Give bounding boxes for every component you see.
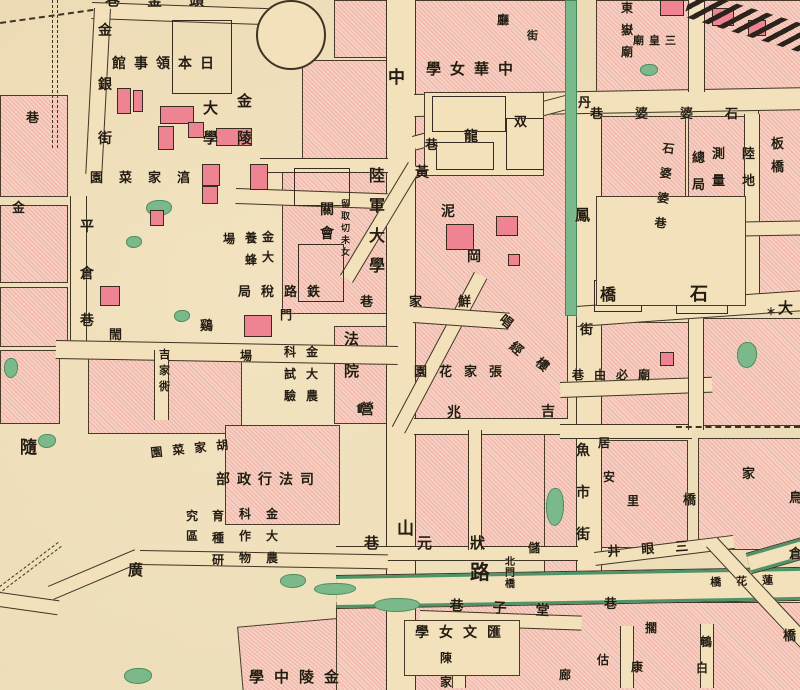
map-label: 巷由必廟 (572, 369, 660, 381)
map-label: 石 (690, 286, 708, 304)
map-label: 大 (778, 301, 793, 316)
map-label: 學女文匯 (415, 626, 511, 640)
map-label: 閙 (109, 329, 122, 342)
map-label: 唱 (497, 313, 515, 331)
map-label: 關會 (320, 203, 334, 241)
map-label: 居 (598, 437, 610, 449)
map-label: 營 (360, 403, 374, 417)
map-label: 擱 (645, 622, 657, 634)
map-label: 廊 (559, 669, 571, 681)
map-label: 双 (514, 116, 527, 129)
map-label: 科試驗 (284, 346, 296, 402)
map-label: 康 (631, 661, 643, 673)
map-label: 隨 (20, 440, 37, 457)
map-label: 測量 (712, 148, 725, 188)
map-label: 龍 (464, 130, 478, 144)
map-label: 養蜂 (245, 232, 257, 266)
map-label: 金大 (262, 231, 274, 263)
map-label: 大學 (203, 101, 218, 146)
map-label: 科作物 (239, 508, 251, 564)
labels-layer: ＊巷釜頭巷金金銀街館事領本日金陵大學園菜家湻平倉巷金大養蜂場局稅路鉄門閙鷄吉家衖… (0, 0, 800, 690)
map-label: 巷 (26, 112, 39, 125)
map-label: 安 (603, 471, 615, 483)
map-label: 街 (580, 324, 593, 337)
map-label: 鵪 (700, 636, 712, 648)
map-label: 井眼三 (607, 539, 710, 559)
map-label: 橋 (683, 494, 696, 507)
map-label: 陳家 (440, 652, 452, 688)
map-label: 園菜家湻 (90, 172, 206, 185)
map-label: 里 (627, 495, 639, 507)
map-label: 魚市街 (576, 444, 590, 542)
map-label: 場 (240, 350, 252, 362)
map-label: 岡 (467, 250, 481, 264)
map-label: 學女華中 (426, 62, 522, 77)
map-label: 巷家鮮 (360, 296, 507, 309)
map-label: 街 (527, 30, 538, 41)
map-label: 橋 (783, 630, 796, 643)
map-label: 園菜家胡 (150, 438, 239, 459)
map-label: 部政行法司 (216, 473, 321, 487)
map-label: 中 (388, 70, 405, 87)
map-label: 平倉巷 (80, 220, 94, 328)
map-label: 北門橋 (505, 558, 515, 590)
map-label: 家 (742, 468, 755, 481)
map-label: 丹 (578, 97, 591, 110)
map-label: 館事領本日 (112, 57, 222, 71)
map-label: 學中陵金 (249, 670, 349, 685)
map-label: 金銀街 (98, 24, 112, 146)
map-label: 鳥 (789, 492, 800, 505)
map-label: 金 (12, 202, 25, 215)
map-label: 白 (696, 662, 708, 674)
map-label: 兆 (447, 406, 461, 420)
map-label: 陸地 (742, 148, 755, 188)
map-label: 廳 (497, 14, 509, 26)
map-label: 儲 (528, 542, 540, 554)
map-label: 路 (470, 562, 490, 582)
map-label: 吉家衖 (159, 349, 170, 392)
map-label: 鳳 (575, 208, 590, 223)
map-label: 局稅路鉄 (238, 286, 330, 299)
map-label: 橋花蓮 (710, 574, 788, 588)
map-label: 東嶽廟 (621, 2, 633, 58)
map-label: 究區 (186, 510, 198, 542)
map-label: 石婆婆巷 (654, 142, 675, 230)
map-label: 陸軍大學 (369, 168, 385, 274)
map-label: 板橋 (771, 138, 784, 174)
map-label: 樓 (533, 356, 551, 374)
map-label: 廟皇三 (633, 35, 681, 46)
map-label: 估 (597, 654, 609, 666)
map-label: 門 (280, 309, 292, 321)
map-label: 巷元狀 (364, 536, 523, 551)
map-label: 巷子堂 (449, 599, 579, 620)
map-label: 巷 (604, 598, 617, 611)
map-label: 巷釜頭 (105, 0, 231, 8)
map-label: 留取切未女 (341, 201, 350, 258)
map-label: 場 (223, 233, 235, 245)
map-label: 法院 (344, 332, 359, 379)
map-label: 經 (507, 340, 525, 358)
map-label: 育種研 (212, 510, 224, 566)
map-label: 總局 (692, 152, 705, 192)
map-label: 金大農 (266, 508, 278, 564)
map-label: 廣 (128, 563, 143, 578)
map-label: 倉 (789, 548, 800, 561)
map-label: 金陵 (237, 94, 252, 146)
map-label: 園花家張 (414, 366, 514, 379)
historical-city-map: ＊巷釜頭巷金金銀街館事領本日金陵大學園菜家湻平倉巷金大養蜂場局稅路鉄門閙鷄吉家衖… (0, 0, 800, 690)
map-marker-star: ＊ (766, 303, 776, 318)
map-label: 巷婆婆石 (590, 108, 770, 121)
map-label: 吉 (541, 405, 555, 419)
map-label: 黃 (415, 166, 429, 180)
map-label: 巷 (425, 139, 438, 152)
map-label: 金大農 (306, 346, 318, 402)
map-label: 泥 (441, 205, 455, 219)
map-label: 橋 (600, 287, 616, 303)
map-label: 鷄 (200, 320, 213, 333)
